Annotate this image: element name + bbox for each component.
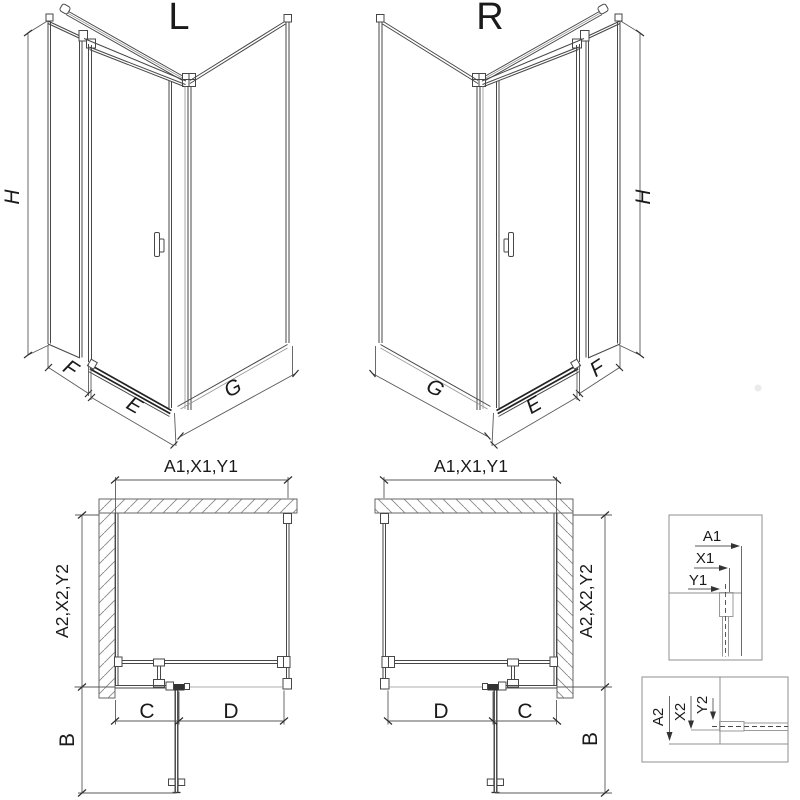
iso-right-dim-g: G <box>422 374 447 402</box>
plan-right-dim-b: B <box>579 732 602 746</box>
plan-left-dim-top: A1,X1,Y1 <box>164 456 238 476</box>
detail-top-y1-label: Y1 <box>689 572 707 589</box>
detail-bottom-x2-label: X2 <box>672 703 689 721</box>
plan-right-dim-c: C <box>517 700 532 723</box>
iso-view-right: R H F E G <box>370 0 656 449</box>
plan-left-dim-d: D <box>223 700 238 723</box>
detail-top-x1-label: X1 <box>696 550 714 567</box>
iso-right-dim-f: F <box>586 355 610 382</box>
iso-left-dim-g: G <box>220 374 245 402</box>
iso-right-dim-h: H <box>632 189 655 205</box>
iso-left-dim-h: H <box>1 189 24 205</box>
plan-left-dim-b: B <box>56 733 79 747</box>
plan-left-dim-c: C <box>139 700 154 723</box>
iso-left-dim-e: E <box>122 392 146 419</box>
iso-right-title: R <box>476 0 503 38</box>
iso-view-left: L H F E G <box>1 0 299 449</box>
plan-view-left: A1,X1,Y1 A2,X2,Y2 B C D <box>52 456 297 797</box>
plan-right-dim-top: A1,X1,Y1 <box>434 456 508 476</box>
plan-left-dim-side: A2,X2,Y2 <box>52 564 72 638</box>
iso-right-dim-e: E <box>522 391 546 418</box>
plan-view-right: A1,X1,Y1 A2,X2,Y2 B D C <box>375 456 612 797</box>
detail-bottom-a2-label: A2 <box>650 708 667 726</box>
detail-top-a1-label: A1 <box>703 528 721 545</box>
plan-right-dim-side: A2,X2,Y2 <box>576 564 596 638</box>
iso-left-dim-f: F <box>59 355 83 382</box>
detail-bottom-y2-label: Y2 <box>694 696 711 714</box>
detail-box-bottom: A2 X2 Y2 <box>642 677 788 762</box>
detail-box-top: A1 X1 Y1 <box>669 515 762 660</box>
drawing-svg: L H F E G R H F E G A1,X1,Y1 A2,X2,Y2 B … <box>0 0 800 800</box>
watermark-dot <box>755 385 762 392</box>
iso-left-title: L <box>168 0 189 38</box>
plan-right-dim-d: D <box>433 700 448 723</box>
shower-enclosure-technical-drawing: L H F E G R H F E G A1,X1,Y1 A2,X2,Y2 B … <box>0 0 800 800</box>
